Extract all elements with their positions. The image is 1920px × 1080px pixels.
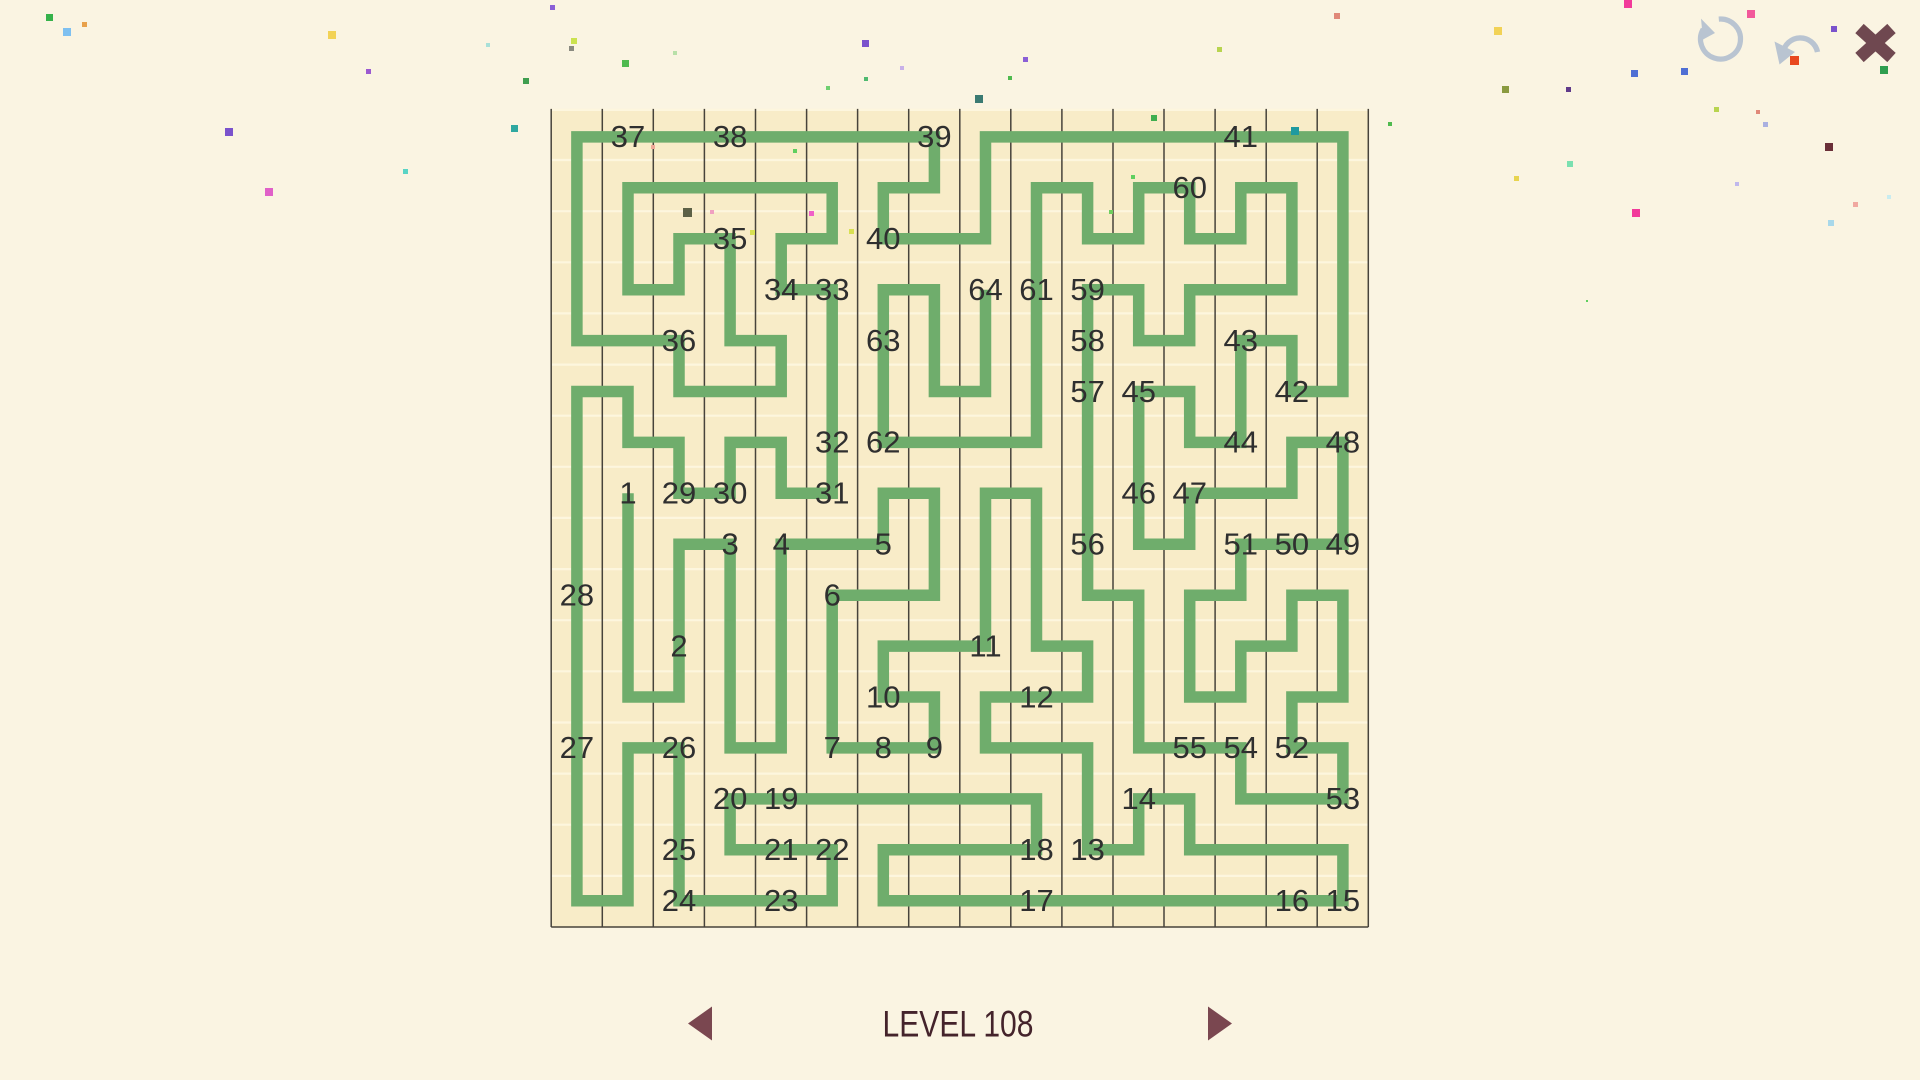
svg-text:32: 32 (815, 425, 849, 460)
svg-text:38: 38 (713, 119, 747, 154)
svg-text:45: 45 (1121, 374, 1155, 409)
svg-text:20: 20 (713, 781, 747, 816)
svg-text:61: 61 (1019, 272, 1053, 307)
svg-text:39: 39 (917, 119, 951, 154)
svg-text:7: 7 (824, 730, 841, 765)
svg-text:26: 26 (662, 730, 696, 765)
svg-text:LEVEL 108: LEVEL 108 (883, 1004, 1034, 1045)
svg-text:34: 34 (764, 272, 798, 307)
svg-text:62: 62 (866, 425, 900, 460)
svg-text:46: 46 (1121, 476, 1155, 511)
svg-text:64: 64 (968, 272, 1002, 307)
svg-text:27: 27 (560, 730, 594, 765)
svg-text:31: 31 (815, 476, 849, 511)
svg-text:51: 51 (1224, 527, 1258, 562)
svg-text:58: 58 (1070, 323, 1104, 358)
svg-text:1: 1 (619, 476, 636, 511)
svg-text:55: 55 (1172, 730, 1206, 765)
svg-text:57: 57 (1070, 374, 1104, 409)
svg-text:8: 8 (875, 730, 892, 765)
svg-text:2: 2 (670, 628, 687, 663)
svg-text:29: 29 (662, 476, 696, 511)
svg-text:53: 53 (1326, 781, 1360, 816)
svg-text:4: 4 (773, 527, 790, 562)
svg-text:19: 19 (764, 781, 798, 816)
svg-text:50: 50 (1275, 527, 1309, 562)
svg-text:56: 56 (1070, 527, 1104, 562)
svg-text:28: 28 (560, 578, 594, 613)
svg-text:23: 23 (764, 883, 798, 918)
svg-text:41: 41 (1224, 119, 1258, 154)
svg-text:15: 15 (1326, 883, 1360, 918)
svg-text:5: 5 (875, 527, 892, 562)
svg-text:30: 30 (713, 476, 747, 511)
svg-text:37: 37 (611, 119, 645, 154)
svg-text:21: 21 (764, 832, 798, 867)
svg-text:13: 13 (1070, 832, 1104, 867)
svg-text:33: 33 (815, 272, 849, 307)
svg-text:11: 11 (969, 628, 1001, 663)
svg-text:40: 40 (866, 221, 900, 256)
svg-text:17: 17 (1019, 883, 1053, 918)
svg-text:14: 14 (1121, 781, 1155, 816)
svg-text:24: 24 (662, 883, 696, 918)
svg-text:35: 35 (713, 221, 747, 256)
svg-text:18: 18 (1019, 832, 1053, 867)
svg-text:54: 54 (1224, 730, 1258, 765)
svg-text:44: 44 (1224, 425, 1258, 460)
svg-text:49: 49 (1326, 527, 1360, 562)
svg-text:16: 16 (1275, 883, 1309, 918)
svg-text:36: 36 (662, 323, 696, 358)
svg-text:22: 22 (815, 832, 849, 867)
svg-text:59: 59 (1070, 272, 1104, 307)
svg-text:25: 25 (662, 832, 696, 867)
svg-text:52: 52 (1275, 730, 1309, 765)
svg-text:3: 3 (721, 527, 738, 562)
svg-text:60: 60 (1172, 170, 1206, 205)
svg-text:9: 9 (926, 730, 943, 765)
svg-text:47: 47 (1172, 476, 1206, 511)
svg-text:10: 10 (866, 679, 900, 714)
svg-text:63: 63 (866, 323, 900, 358)
svg-text:12: 12 (1019, 679, 1053, 714)
svg-text:42: 42 (1275, 374, 1309, 409)
svg-text:48: 48 (1326, 425, 1360, 460)
svg-text:43: 43 (1224, 323, 1258, 358)
svg-text:6: 6 (824, 578, 841, 613)
